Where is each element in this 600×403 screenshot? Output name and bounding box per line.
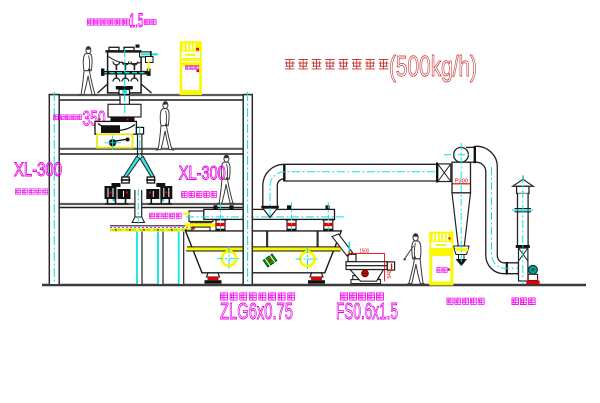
svg-text:XL-300: XL-300 [179,164,226,185]
svg-text:540: 540 [387,270,393,278]
svg-text:(500kg/h): (500kg/h) [389,51,477,83]
svg-text:ZLG6x0.75: ZLG6x0.75 [220,298,293,324]
svg-text:FS0.6x1.5: FS0.6x1.5 [336,298,398,324]
svg-text:XL-300: XL-300 [14,160,62,181]
svg-text:1500: 1500 [360,249,370,255]
svg-text:1.5: 1.5 [130,11,144,32]
